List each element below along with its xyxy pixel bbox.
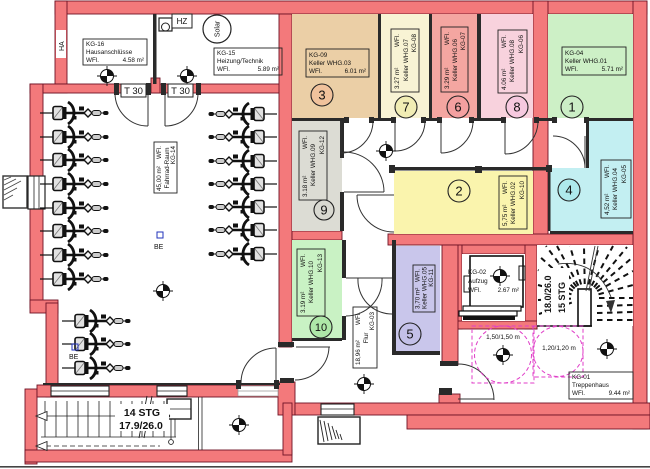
svg-text:WFl.: WFl. [355,312,362,325]
svg-text:45,00 m²: 45,00 m² [156,166,163,191]
svg-text:Keller WHG.09: Keller WHG.09 [310,144,317,186]
svg-text:KG-10: KG-10 [519,181,526,200]
svg-text:WFl.: WFl. [444,32,451,45]
svg-text:Keller WHG.02: Keller WHG.02 [510,182,517,224]
svg-text:17.9/26.0: 17.9/26.0 [119,420,163,432]
svg-text:Keller WHG.06: Keller WHG.06 [452,39,459,81]
svg-text:KG-06: KG-06 [518,35,525,54]
svg-text:KG-16: KG-16 [86,41,105,48]
svg-text:KG-15: KG-15 [217,50,236,57]
svg-text:Aufzug: Aufzug [468,278,488,285]
svg-text:HZ: HZ [177,17,188,26]
svg-text:KG-07: KG-07 [460,32,467,51]
svg-text:WFl.: WFl. [302,136,309,149]
svg-text:WFl.: WFl. [86,57,99,64]
svg-text:8: 8 [513,100,520,115]
svg-text:Treppenhaus: Treppenhaus [572,382,609,389]
svg-text:18,96 m²: 18,96 m² [355,340,362,365]
svg-text:T 30: T 30 [171,86,190,97]
svg-text:2: 2 [455,184,462,199]
svg-text:14 STG: 14 STG [124,407,160,419]
svg-text:WFl.: WFl. [300,254,307,267]
svg-text:9: 9 [320,203,327,218]
svg-text:4.58 m²: 4.58 m² [123,57,144,64]
svg-text:KG-09: KG-09 [309,52,328,59]
svg-text:15 STG: 15 STG [557,282,567,313]
svg-text:4: 4 [565,183,572,198]
svg-text:KG-13: KG-13 [317,254,324,273]
svg-text:3.18 m²: 3.18 m² [302,176,309,197]
svg-text:HA: HA [59,41,66,51]
svg-text:Keller WHG.07: Keller WHG.07 [403,39,410,81]
svg-text:6: 6 [454,100,461,115]
svg-text:WFl.: WFl. [394,34,401,47]
svg-text:9.44 m²: 9.44 m² [609,390,630,397]
svg-text:1,50/1,50 m: 1,50/1,50 m [486,334,520,341]
svg-text:BE: BE [69,354,79,361]
svg-text:KG-14: KG-14 [170,146,177,165]
svg-text:KG-08: KG-08 [411,34,418,53]
svg-text:Flur: Flur [363,333,370,344]
svg-text:BE: BE [154,244,164,251]
svg-text:Keller WHG.08: Keller WHG.08 [509,40,516,82]
svg-text:3: 3 [318,88,325,103]
svg-text:KG-03: KG-03 [369,312,376,331]
svg-text:WFl.: WFl. [572,390,585,397]
svg-text:WFl.: WFl. [501,35,508,48]
svg-text:KG-04: KG-04 [565,50,584,57]
svg-text:WFl.: WFl. [415,269,422,282]
svg-text:KG-12: KG-12 [319,136,326,155]
svg-text:3.29 m²: 3.29 m² [444,68,451,89]
svg-text:WFl.: WFl. [309,68,322,75]
svg-text:3.19 m²: 3.19 m² [300,292,307,313]
svg-text:KG-11: KG-11 [428,269,435,287]
svg-text:5.89 m²: 5.89 m² [258,66,279,73]
svg-text:Keller WHG.04: Keller WHG.04 [612,168,619,210]
svg-text:Keller WHG.10: Keller WHG.10 [308,261,315,303]
svg-text:WFl.: WFl. [604,165,611,178]
svg-text:6.01 m²: 6.01 m² [345,68,366,75]
svg-text:Keller WHG.03: Keller WHG.03 [309,60,351,67]
svg-text:4,52 m²: 4,52 m² [604,194,611,215]
svg-text:Heizung/Technik: Heizung/Technik [217,58,264,65]
svg-text:3,70 m²: 3,70 m² [415,288,422,309]
svg-text:5,75 m²: 5,75 m² [502,205,509,226]
svg-text:WFl.: WFl. [502,181,509,194]
svg-text:10: 10 [315,322,327,334]
svg-text:5: 5 [406,327,413,342]
svg-text:KG-01: KG-01 [572,374,591,381]
svg-text:Solar: Solar [215,20,222,37]
svg-text:2.67 m²: 2.67 m² [498,287,519,294]
svg-text:1,20/1,20 m: 1,20/1,20 m [542,345,576,352]
svg-text:KG-05: KG-05 [621,165,628,184]
svg-text:WFl.: WFl. [156,146,163,159]
svg-text:3.27 m²: 3.27 m² [394,68,401,89]
svg-text:WFl.: WFl. [468,287,481,294]
svg-text:WFl.: WFl. [565,66,578,73]
svg-text:1: 1 [568,100,575,115]
svg-text:4.06 m²: 4.06 m² [501,69,508,90]
svg-text:7: 7 [402,100,409,115]
svg-text:KG-02: KG-02 [468,269,487,276]
svg-text:Hausanschlüsse: Hausanschlüsse [86,49,133,56]
svg-text:WFl.: WFl. [217,66,230,73]
svg-text:5.71 m²: 5.71 m² [602,66,623,73]
svg-text:Keller WHG.01: Keller WHG.01 [565,58,607,65]
svg-text:T 30: T 30 [124,86,143,97]
svg-text:18.0/26.0: 18.0/26.0 [543,275,553,313]
